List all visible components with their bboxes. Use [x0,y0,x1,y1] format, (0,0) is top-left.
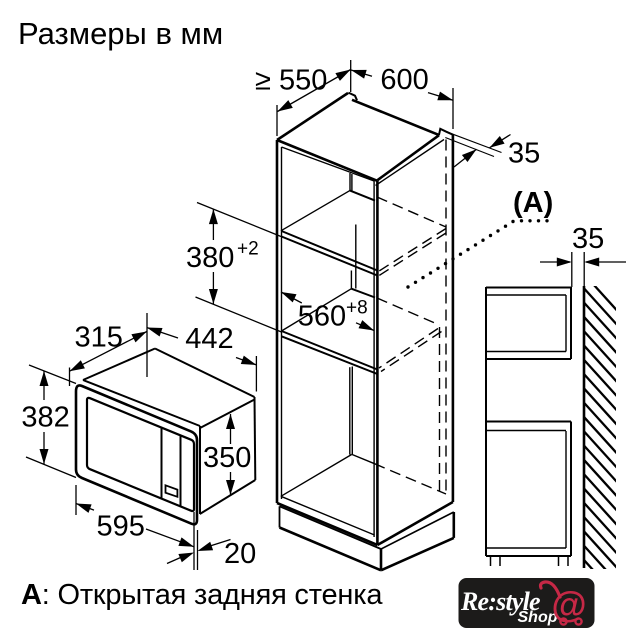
svg-text:(А): (А) [513,187,553,219]
svg-text:595: 595 [97,510,145,542]
svg-text:А: Открытая задняя стенка: А: Открытая задняя стенка [21,579,383,611]
svg-text:20: 20 [224,538,256,570]
svg-text:+8: +8 [346,298,368,319]
svg-text:315: 315 [75,322,123,354]
svg-text:600: 600 [380,64,428,96]
svg-text:560: 560 [298,300,346,332]
svg-text:442: 442 [185,323,233,355]
svg-text:380: 380 [186,242,234,274]
svg-text:+2: +2 [237,239,259,260]
svg-text:350: 350 [203,442,251,474]
svg-text:382: 382 [21,402,69,434]
svg-text:Размеры в мм: Размеры в мм [18,16,223,51]
svg-text:35: 35 [508,138,540,170]
svg-text:≥ 550: ≥ 550 [255,65,327,97]
svg-text:35: 35 [572,223,604,255]
